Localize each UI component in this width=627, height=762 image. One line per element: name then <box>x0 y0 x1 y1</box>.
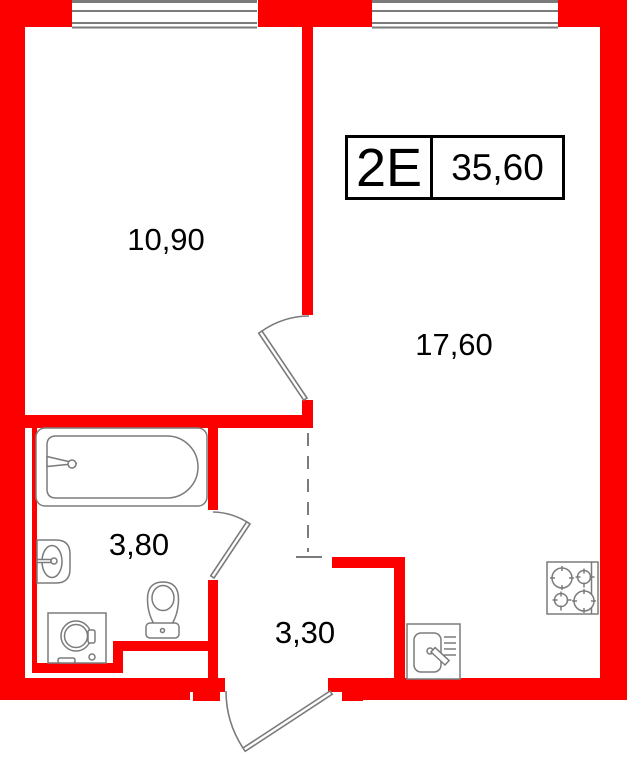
wall-bottom-left <box>0 678 190 700</box>
bathtub-icon <box>36 428 207 506</box>
unit-info-box: 2E 35,60 <box>345 135 565 200</box>
door-bathroom-icon <box>211 512 250 578</box>
door-leaf <box>259 331 307 400</box>
room-area-label-bedroom: 10,90 <box>127 222 205 258</box>
walls <box>0 0 627 701</box>
washing-machine-icon <box>48 613 106 663</box>
room-area-label-living-room: 17,60 <box>415 327 493 363</box>
wall-bottom-right-end <box>328 678 363 692</box>
door-swing-arc <box>262 316 309 331</box>
door-leaf <box>243 691 332 751</box>
door-swing-arc <box>226 691 243 748</box>
door-living-icon <box>259 316 309 400</box>
wall-hallway-vertical <box>394 557 405 683</box>
floor-plan: 10,90 17,60 3,80 3,30 2E 35,60 <box>0 0 627 762</box>
wall-bathroom-right-upper <box>208 428 218 510</box>
wall-bathroom-top <box>0 415 313 428</box>
door-swing-arc <box>213 512 250 524</box>
wall-bathroom-right-lower <box>208 580 218 680</box>
toilet-icon <box>146 582 179 638</box>
unit-total-area: 35,60 <box>433 138 562 197</box>
washer-latch <box>88 630 95 643</box>
room-area-label-hallway: 3,30 <box>275 615 335 651</box>
door-leaf <box>211 522 250 578</box>
door-jamb-left <box>193 692 220 701</box>
wall-left-outer <box>0 0 25 700</box>
wall-bathroom-bottom-left <box>32 663 120 673</box>
wall-corner-top-left <box>0 0 72 27</box>
window-right-icon <box>372 2 558 28</box>
bathtub-drain <box>68 460 76 468</box>
washbasin-icon <box>37 540 70 583</box>
wall-bottom-left-end <box>190 678 225 692</box>
opening-dashed-line <box>296 433 322 557</box>
kitchen-sink-icon <box>407 624 460 679</box>
stove-icon <box>547 562 598 614</box>
wall-bathroom-bottom-right <box>113 641 218 651</box>
door-entrance-icon <box>226 691 332 751</box>
door-jamb-right <box>342 692 363 701</box>
window-left-icon <box>72 2 257 28</box>
washbasin-faucet <box>37 560 51 563</box>
wall-rooms-divider-top <box>302 27 313 315</box>
wall-top-pier <box>258 0 372 27</box>
room-area-label-bathroom: 3,80 <box>109 527 169 563</box>
unit-type-label: 2E <box>348 138 433 197</box>
wall-right-outer <box>600 0 627 700</box>
